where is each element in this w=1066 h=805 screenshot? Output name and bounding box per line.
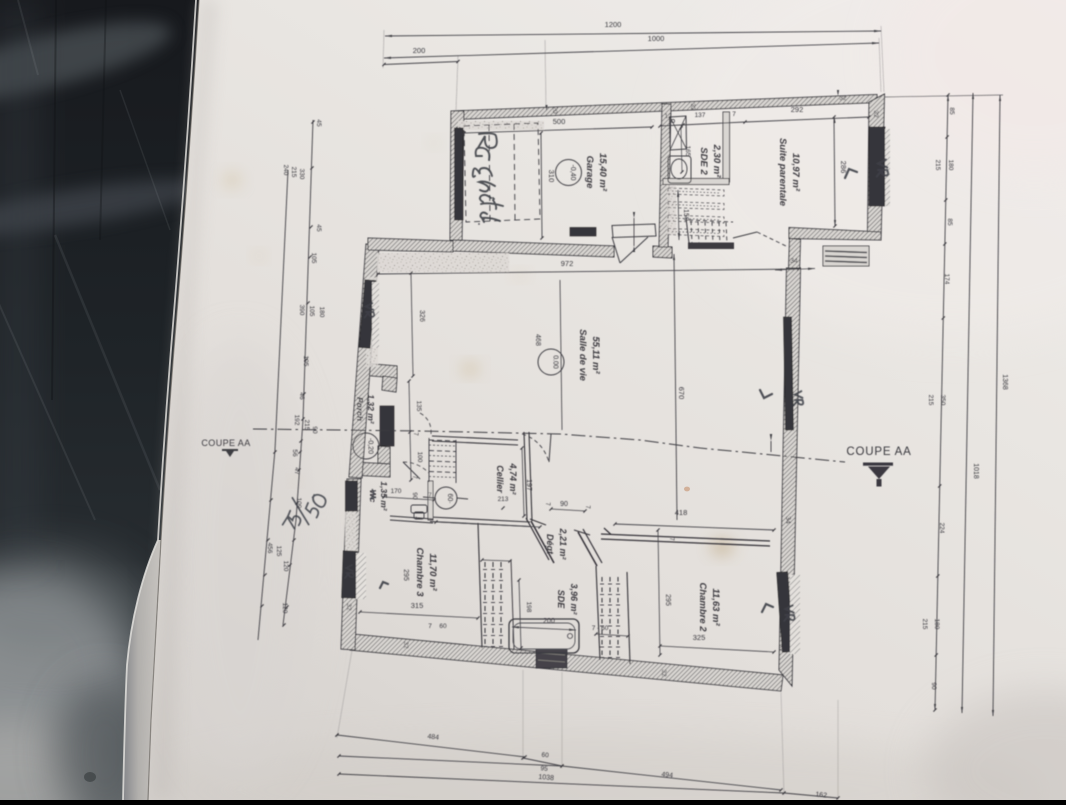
- svg-text:0.00: 0.00: [552, 355, 559, 369]
- svg-text:11,63 m²: 11,63 m²: [710, 588, 721, 626]
- svg-text:Cellier: Cellier: [495, 465, 505, 493]
- svg-text:105: 105: [310, 253, 317, 264]
- svg-text:7 - 60: 7 - 60: [592, 625, 609, 632]
- svg-text:295: 295: [402, 569, 409, 581]
- svg-text:Porch: Porch: [355, 397, 365, 421]
- svg-text:60: 60: [541, 752, 549, 760]
- svg-text:215: 215: [934, 160, 941, 171]
- svg-text:137: 137: [695, 112, 706, 119]
- svg-text:46: 46: [298, 392, 305, 400]
- svg-text:162: 162: [815, 791, 827, 799]
- svg-text:4,74 m²: 4,74 m²: [508, 462, 518, 495]
- svg-text:15,40 m²: 15,40 m²: [597, 153, 608, 192]
- svg-text:45: 45: [315, 224, 322, 232]
- svg-text:200: 200: [413, 46, 426, 55]
- svg-text:1018: 1018: [972, 463, 979, 479]
- svg-text:32: 32: [660, 669, 667, 677]
- svg-text:10,97 m²: 10,97 m²: [790, 153, 801, 192]
- svg-text:120: 120: [282, 561, 289, 572]
- svg-text:32: 32: [351, 487, 358, 495]
- svg-text:60·: 60·: [446, 493, 453, 503]
- svg-text:197: 197: [525, 479, 532, 491]
- svg-text:100: 100: [416, 452, 423, 463]
- svg-text:COUPE AA: COUPE AA: [201, 438, 250, 448]
- svg-text:215: 215: [927, 395, 934, 406]
- svg-text:286: 286: [839, 161, 848, 174]
- svg-text:90: 90: [411, 492, 418, 500]
- svg-text:972: 972: [561, 259, 574, 268]
- svg-text:Chambre 3: Chambre 3: [414, 547, 425, 597]
- svg-text:20: 20: [454, 126, 461, 134]
- svg-text:32: 32: [689, 103, 696, 111]
- svg-text:32: 32: [345, 603, 352, 611]
- svg-text:32: 32: [839, 95, 847, 102]
- svg-text:1368: 1368: [1001, 374, 1008, 390]
- svg-text:90: 90: [311, 426, 318, 434]
- svg-text:670: 670: [677, 387, 686, 400]
- svg-text:Chambre 2: Chambre 2: [697, 582, 708, 632]
- svg-text:215: 215: [921, 619, 928, 630]
- svg-text:180: 180: [947, 160, 954, 171]
- svg-text:170: 170: [391, 488, 402, 495]
- svg-text:Garage: Garage: [584, 156, 595, 189]
- svg-text:Salle de vie: Salle de vie: [577, 329, 588, 381]
- svg-text:1038: 1038: [538, 774, 554, 782]
- svg-text:56: 56: [291, 449, 298, 457]
- svg-text:SDE: SDE: [556, 590, 566, 610]
- svg-text:11,70 m²: 11,70 m²: [427, 553, 438, 591]
- svg-text:174: 174: [943, 274, 950, 285]
- svg-text:292: 292: [791, 105, 804, 114]
- svg-text:120: 120: [281, 603, 288, 614]
- svg-text:295: 295: [664, 594, 671, 606]
- svg-text:150: 150: [682, 209, 689, 221]
- svg-text:198: 198: [525, 602, 532, 613]
- svg-text:135: 135: [415, 401, 422, 412]
- svg-text:2,21 m²: 2,21 m²: [558, 527, 568, 560]
- svg-text:326: 326: [418, 310, 425, 322]
- svg-text:330: 330: [298, 169, 305, 180]
- svg-text:215: 215: [290, 167, 297, 178]
- svg-text:456: 456: [266, 543, 273, 554]
- svg-text:-0,40: -0,40: [569, 165, 576, 181]
- svg-text:192: 192: [293, 415, 300, 426]
- svg-text:484: 484: [427, 733, 439, 741]
- svg-text:125: 125: [275, 546, 282, 557]
- svg-text:165: 165: [684, 146, 691, 157]
- svg-text:SDE 2: SDE 2: [698, 147, 709, 175]
- svg-text:-0,20: -0,20: [367, 438, 374, 454]
- svg-text:90: 90: [930, 682, 937, 690]
- svg-text:12: 12: [664, 113, 672, 120]
- svg-text:2,30 m²: 2,30 m²: [711, 144, 722, 179]
- svg-text:1200: 1200: [605, 20, 622, 29]
- svg-text:95: 95: [540, 765, 548, 773]
- svg-text:500: 500: [553, 117, 566, 126]
- svg-text:34: 34: [790, 258, 798, 265]
- svg-text:390: 390: [298, 305, 305, 316]
- svg-text:315: 315: [411, 601, 424, 610]
- svg-text:325: 325: [693, 633, 706, 642]
- svg-text:7: 7: [428, 623, 432, 630]
- svg-text:1,32 m²: 1,32 m²: [366, 394, 376, 424]
- svg-text:310: 310: [547, 170, 556, 183]
- svg-text:Suite parentale: Suite parentale: [777, 138, 788, 207]
- svg-text:60: 60: [439, 623, 447, 630]
- svg-text:418: 418: [675, 508, 688, 517]
- svg-text:7: 7: [732, 111, 736, 118]
- svg-text:180: 180: [933, 619, 940, 630]
- svg-text:350: 350: [939, 395, 946, 406]
- svg-text:224: 224: [938, 523, 945, 534]
- svg-text:45: 45: [315, 119, 322, 127]
- svg-text:34: 34: [784, 516, 791, 524]
- svg-text:1000: 1000: [648, 34, 665, 43]
- svg-text:90: 90: [560, 501, 568, 508]
- svg-text:32: 32: [872, 110, 879, 118]
- svg-text:200: 200: [543, 618, 555, 625]
- svg-text:32: 32: [402, 641, 409, 649]
- svg-text:32: 32: [777, 644, 784, 652]
- svg-text:Dégt: Dégt: [545, 534, 555, 555]
- svg-text:3,96 m²: 3,96 m²: [569, 583, 579, 615]
- svg-text:85: 85: [946, 218, 953, 226]
- svg-text:215: 215: [303, 420, 310, 431]
- svg-text:213: 213: [498, 496, 509, 503]
- svg-text:55,11 m²: 55,11 m²: [590, 336, 601, 374]
- svg-text:20: 20: [551, 106, 558, 114]
- svg-text:47: 47: [293, 467, 300, 475]
- svg-text:468: 468: [534, 334, 541, 346]
- svg-text:105: 105: [302, 356, 309, 367]
- svg-text:85: 85: [948, 107, 955, 115]
- svg-text:494: 494: [661, 771, 673, 779]
- svg-text:COUPE AA: COUPE AA: [846, 446, 911, 458]
- svg-text:180: 180: [318, 307, 325, 318]
- svg-text:105: 105: [308, 306, 315, 317]
